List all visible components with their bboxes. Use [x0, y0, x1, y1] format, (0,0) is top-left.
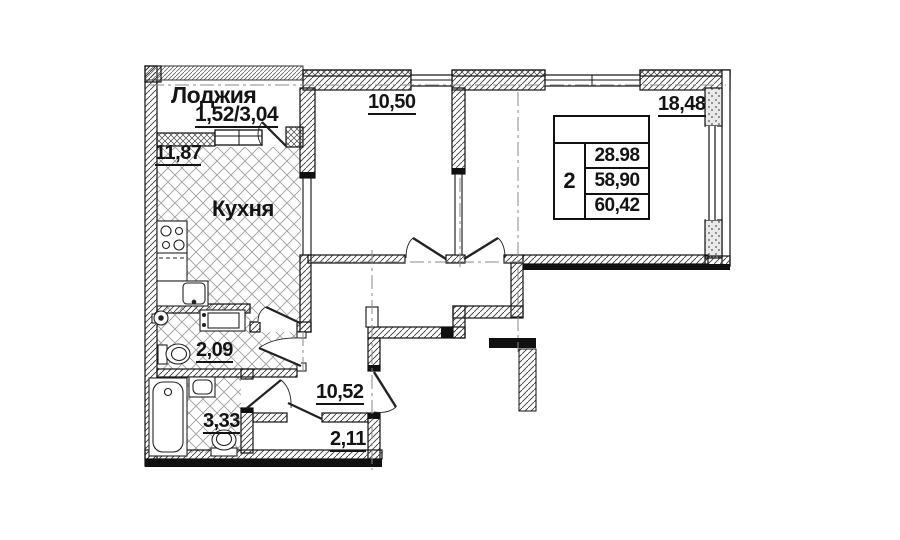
area-without-loggia-cell: 58,90	[586, 169, 648, 194]
window-room2-right	[706, 126, 717, 220]
entrance-door-arc	[374, 407, 396, 412]
loggia-window	[215, 130, 262, 145]
window-room2-top	[545, 75, 640, 86]
area-label-room1: 10,50	[368, 92, 416, 115]
right-wall-outer	[722, 70, 730, 266]
area-label-room2: 18,48	[658, 94, 706, 117]
bathtub-icon	[149, 378, 187, 456]
wc-toilet-icon	[158, 344, 190, 364]
stairwell-wall	[519, 349, 536, 411]
living-area-cell: 28.98	[586, 144, 648, 169]
info-table-header-cell	[555, 117, 648, 144]
area-label-wardrobe: 2,11	[330, 429, 366, 452]
floor-plan-page: Лоджия 1,52/3,04 11,87 Кухня 10,50 18,48…	[0, 0, 900, 540]
area-label-kitchen: 11,87	[155, 143, 201, 166]
stove-icon	[157, 221, 187, 253]
room-name-kitchen: Кухня	[212, 198, 274, 220]
room1-door-arc	[406, 238, 413, 258]
area-label-loggia: 1,52/3,04	[195, 104, 278, 128]
room2-door-leaf	[464, 238, 498, 259]
kitchen-sink-icon	[183, 283, 205, 304]
washing-machine-icon	[200, 310, 245, 331]
rooms-count-cell: 2	[555, 144, 586, 218]
loggia-glazing	[145, 66, 303, 80]
floor-plan-drawing	[0, 0, 900, 540]
bathroom-door-leaf	[247, 380, 281, 408]
area-label-wc: 2,09	[196, 340, 233, 363]
room1-door-leaf	[413, 238, 446, 259]
entrance-door-leaf	[374, 372, 396, 407]
window-room1	[411, 75, 452, 86]
apartment-info-table: 2 28.98 58,90 60,42	[553, 115, 650, 220]
bath-sink-icon	[189, 377, 215, 397]
area-label-hallway: 10,52	[316, 382, 364, 405]
total-area-cell: 60,42	[586, 195, 648, 218]
area-label-bathroom: 3,33	[203, 411, 240, 434]
wardrobe-door-leaf	[288, 403, 322, 419]
